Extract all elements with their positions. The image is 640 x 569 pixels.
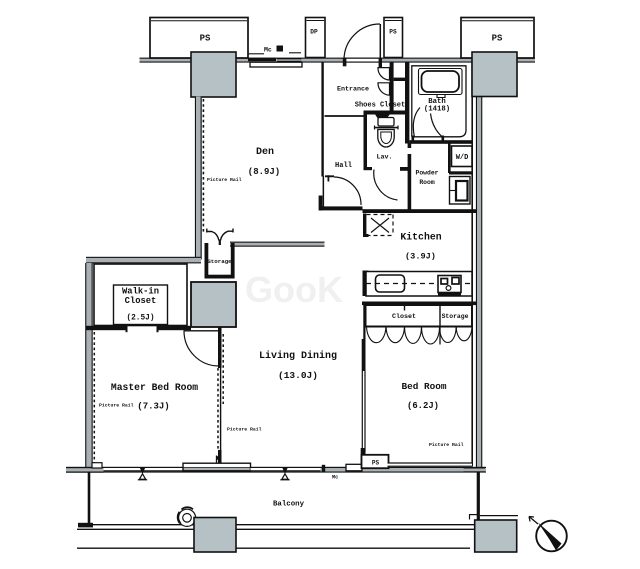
svg-text:Storage: Storage (442, 313, 469, 320)
svg-text:PS: PS (200, 34, 211, 44)
svg-text:Bed Room: Bed Room (401, 381, 446, 392)
svg-text:Balcony: Balcony (273, 501, 305, 509)
svg-text:Picture Rail: Picture Rail (99, 403, 134, 409)
svg-text:Room: Room (419, 179, 435, 186)
svg-text:Kitchen: Kitchen (400, 232, 441, 243)
svg-text:Closet: Closet (125, 296, 157, 306)
svg-text:Entrance: Entrance (337, 86, 369, 94)
svg-text:Picture Rail: Picture Rail (429, 442, 464, 448)
svg-text:Powder: Powder (415, 170, 438, 177)
svg-text:GooK: GooK (245, 269, 343, 310)
svg-text:PS: PS (372, 460, 380, 467)
svg-text:Mc: Mc (264, 47, 272, 54)
svg-text:(2.5J): (2.5J) (126, 315, 154, 323)
svg-text:Picture Rail: Picture Rail (227, 427, 262, 433)
svg-text:(6.2J): (6.2J) (407, 401, 439, 411)
svg-text:W/D: W/D (456, 154, 469, 162)
svg-text:(7.3J): (7.3J) (137, 402, 169, 412)
svg-text:Hall: Hall (335, 162, 352, 170)
svg-text:Master Bed Room: Master Bed Room (111, 382, 198, 393)
svg-text:DP: DP (310, 29, 318, 36)
svg-text:PS: PS (492, 34, 503, 44)
svg-text:Mc: Mc (332, 475, 338, 481)
svg-text:(1418): (1418) (424, 106, 450, 114)
svg-text:Shoes Closet: Shoes Closet (355, 102, 405, 110)
svg-text:(13.0J): (13.0J) (278, 370, 318, 381)
svg-text:Den: Den (256, 147, 274, 158)
svg-text:Closet: Closet (392, 313, 416, 321)
svg-text:(8.9J): (8.9J) (248, 167, 280, 177)
svg-text:(3.9J): (3.9J) (405, 252, 436, 262)
svg-text:Living Dining: Living Dining (259, 350, 337, 362)
svg-text:Picture Rail: Picture Rail (207, 177, 242, 183)
svg-text:Storage: Storage (207, 258, 232, 265)
svg-text:PS: PS (389, 29, 397, 36)
svg-text:Lav.: Lav. (376, 154, 392, 162)
